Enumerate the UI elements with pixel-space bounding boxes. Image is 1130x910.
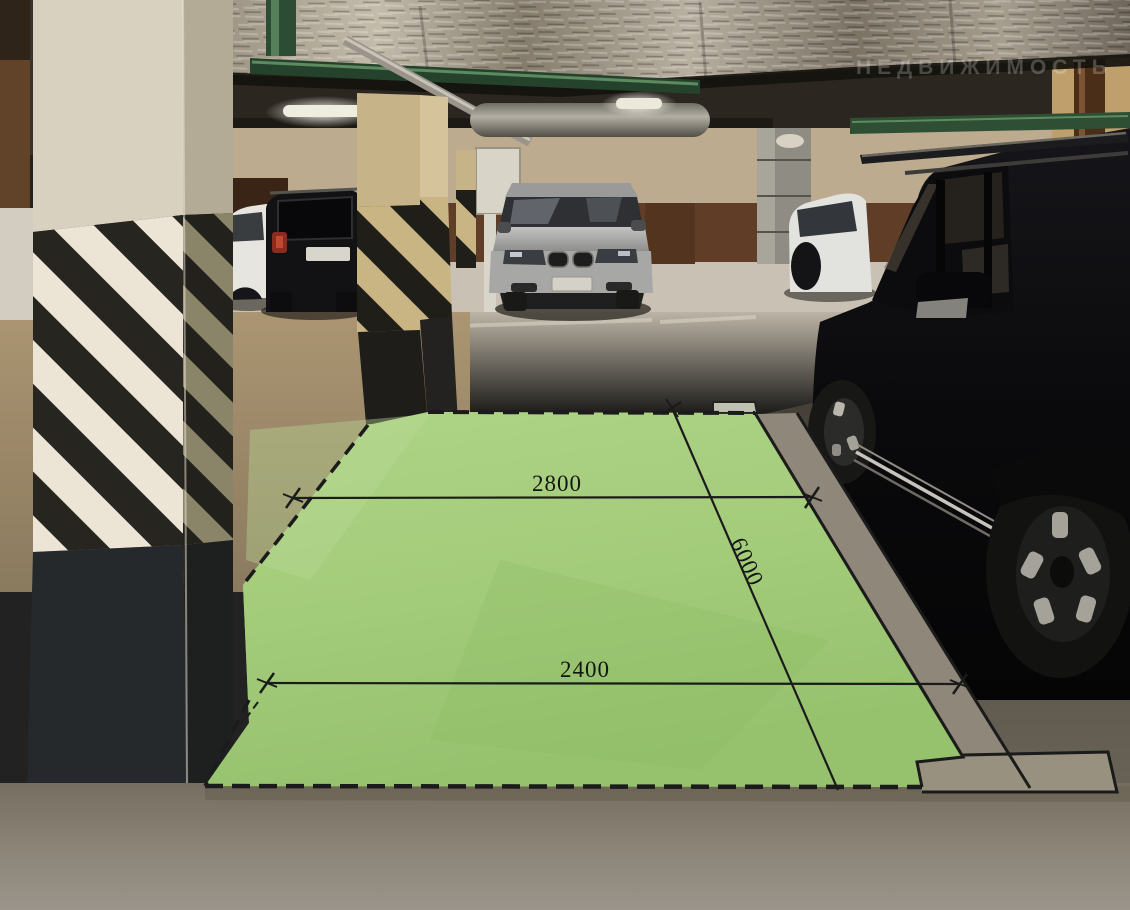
white-crossover	[784, 193, 876, 302]
parking-photo: 2800 6000 2400 НЕДВИЖИМОСТЬ	[0, 0, 1130, 910]
kidney-grille	[573, 252, 593, 267]
left-column-base	[27, 545, 189, 790]
entry-width-label: 2400	[560, 657, 610, 682]
side-mirror	[631, 220, 646, 231]
kidney-grille	[548, 252, 568, 267]
parking-photo-stage: 2800 6000 2400 НЕДВИЖИМОСТЬ	[0, 0, 1130, 910]
license-plate	[306, 247, 350, 261]
side-mirror	[497, 222, 511, 233]
left-column	[0, 0, 233, 790]
headlight	[595, 249, 638, 263]
middle-column-stripes	[357, 205, 420, 332]
roof	[505, 183, 638, 197]
left-column-stripes	[33, 215, 183, 552]
hood	[493, 227, 649, 251]
foreground-asphalt	[0, 783, 1130, 910]
headlight	[503, 250, 546, 265]
width-label: 2800	[532, 471, 582, 496]
license-plate	[552, 277, 592, 291]
background-door	[0, 55, 30, 215]
front-wheel	[986, 446, 1130, 679]
middle-column-base	[358, 330, 428, 424]
bmw-x5	[489, 183, 653, 321]
far-striped-column	[456, 190, 476, 268]
watermark-text: НЕДВИЖИМОСТЬ	[856, 56, 1113, 79]
middle-column	[357, 93, 458, 424]
black-wagon	[261, 189, 369, 320]
